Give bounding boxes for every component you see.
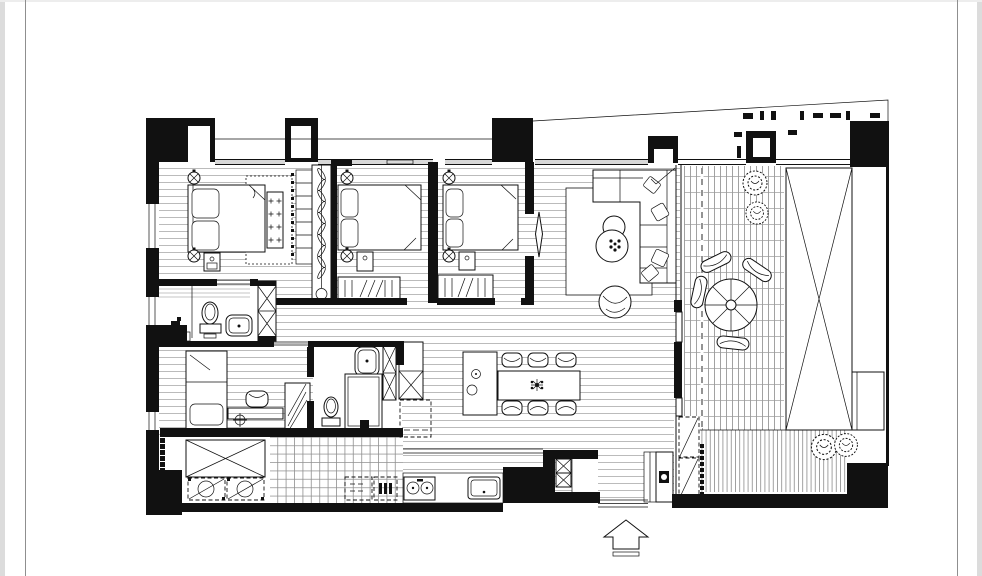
washbasin	[226, 315, 252, 336]
page-canvas	[0, 0, 982, 576]
nightstand	[459, 252, 475, 270]
column	[492, 118, 533, 162]
corner-column	[847, 463, 888, 508]
nightstand	[357, 252, 373, 271]
track-squares	[700, 444, 704, 496]
pillow	[190, 404, 223, 425]
sliding-panel	[676, 312, 682, 342]
desk-chair	[246, 391, 268, 407]
pillow	[192, 189, 219, 218]
dining-table	[498, 371, 580, 400]
wardrobe	[338, 277, 400, 300]
hanging-closet-strip	[312, 165, 331, 303]
corner-column	[850, 121, 888, 167]
tiled-floor	[270, 437, 403, 503]
dining-chair	[556, 353, 576, 367]
entry-door-leaf	[656, 452, 673, 502]
pillow	[446, 189, 463, 217]
page-top-edge	[0, 0, 982, 2]
corner-column	[146, 470, 182, 515]
tufted-bench	[267, 192, 283, 248]
planter	[746, 202, 768, 224]
washbasin	[355, 347, 379, 376]
dining-chair	[502, 353, 522, 367]
dining-chair	[528, 353, 548, 367]
planter	[743, 171, 767, 195]
dining-area	[463, 352, 580, 415]
round-lounge-chair	[599, 286, 631, 318]
ac-niche	[674, 416, 704, 498]
right-wall	[886, 121, 889, 466]
kitchen-sink	[468, 477, 500, 499]
pillow	[341, 219, 358, 247]
dining-chair	[502, 401, 522, 415]
linen-cabinet	[258, 281, 276, 341]
pillow	[192, 221, 219, 250]
fixture	[360, 420, 369, 429]
pillow	[341, 189, 358, 217]
toilet	[322, 397, 340, 426]
closet-shelves	[296, 170, 312, 264]
planter	[811, 434, 836, 459]
closet-bottom	[543, 492, 600, 503]
pillow	[446, 219, 463, 247]
shaft-box	[556, 473, 571, 487]
dining-chair	[556, 401, 576, 415]
storage-cabinet	[383, 346, 396, 400]
nightstand	[204, 253, 220, 271]
floor-plan-drawing	[0, 0, 982, 576]
page-left-edge	[0, 0, 5, 576]
planter	[835, 434, 858, 457]
cooktop	[404, 477, 435, 500]
wardrobe	[285, 383, 310, 430]
sliding-panel	[676, 398, 682, 416]
dining-chair	[528, 401, 548, 415]
shaft-box	[556, 459, 571, 473]
kitchen-island	[463, 352, 497, 415]
page-right-edge	[977, 0, 982, 576]
